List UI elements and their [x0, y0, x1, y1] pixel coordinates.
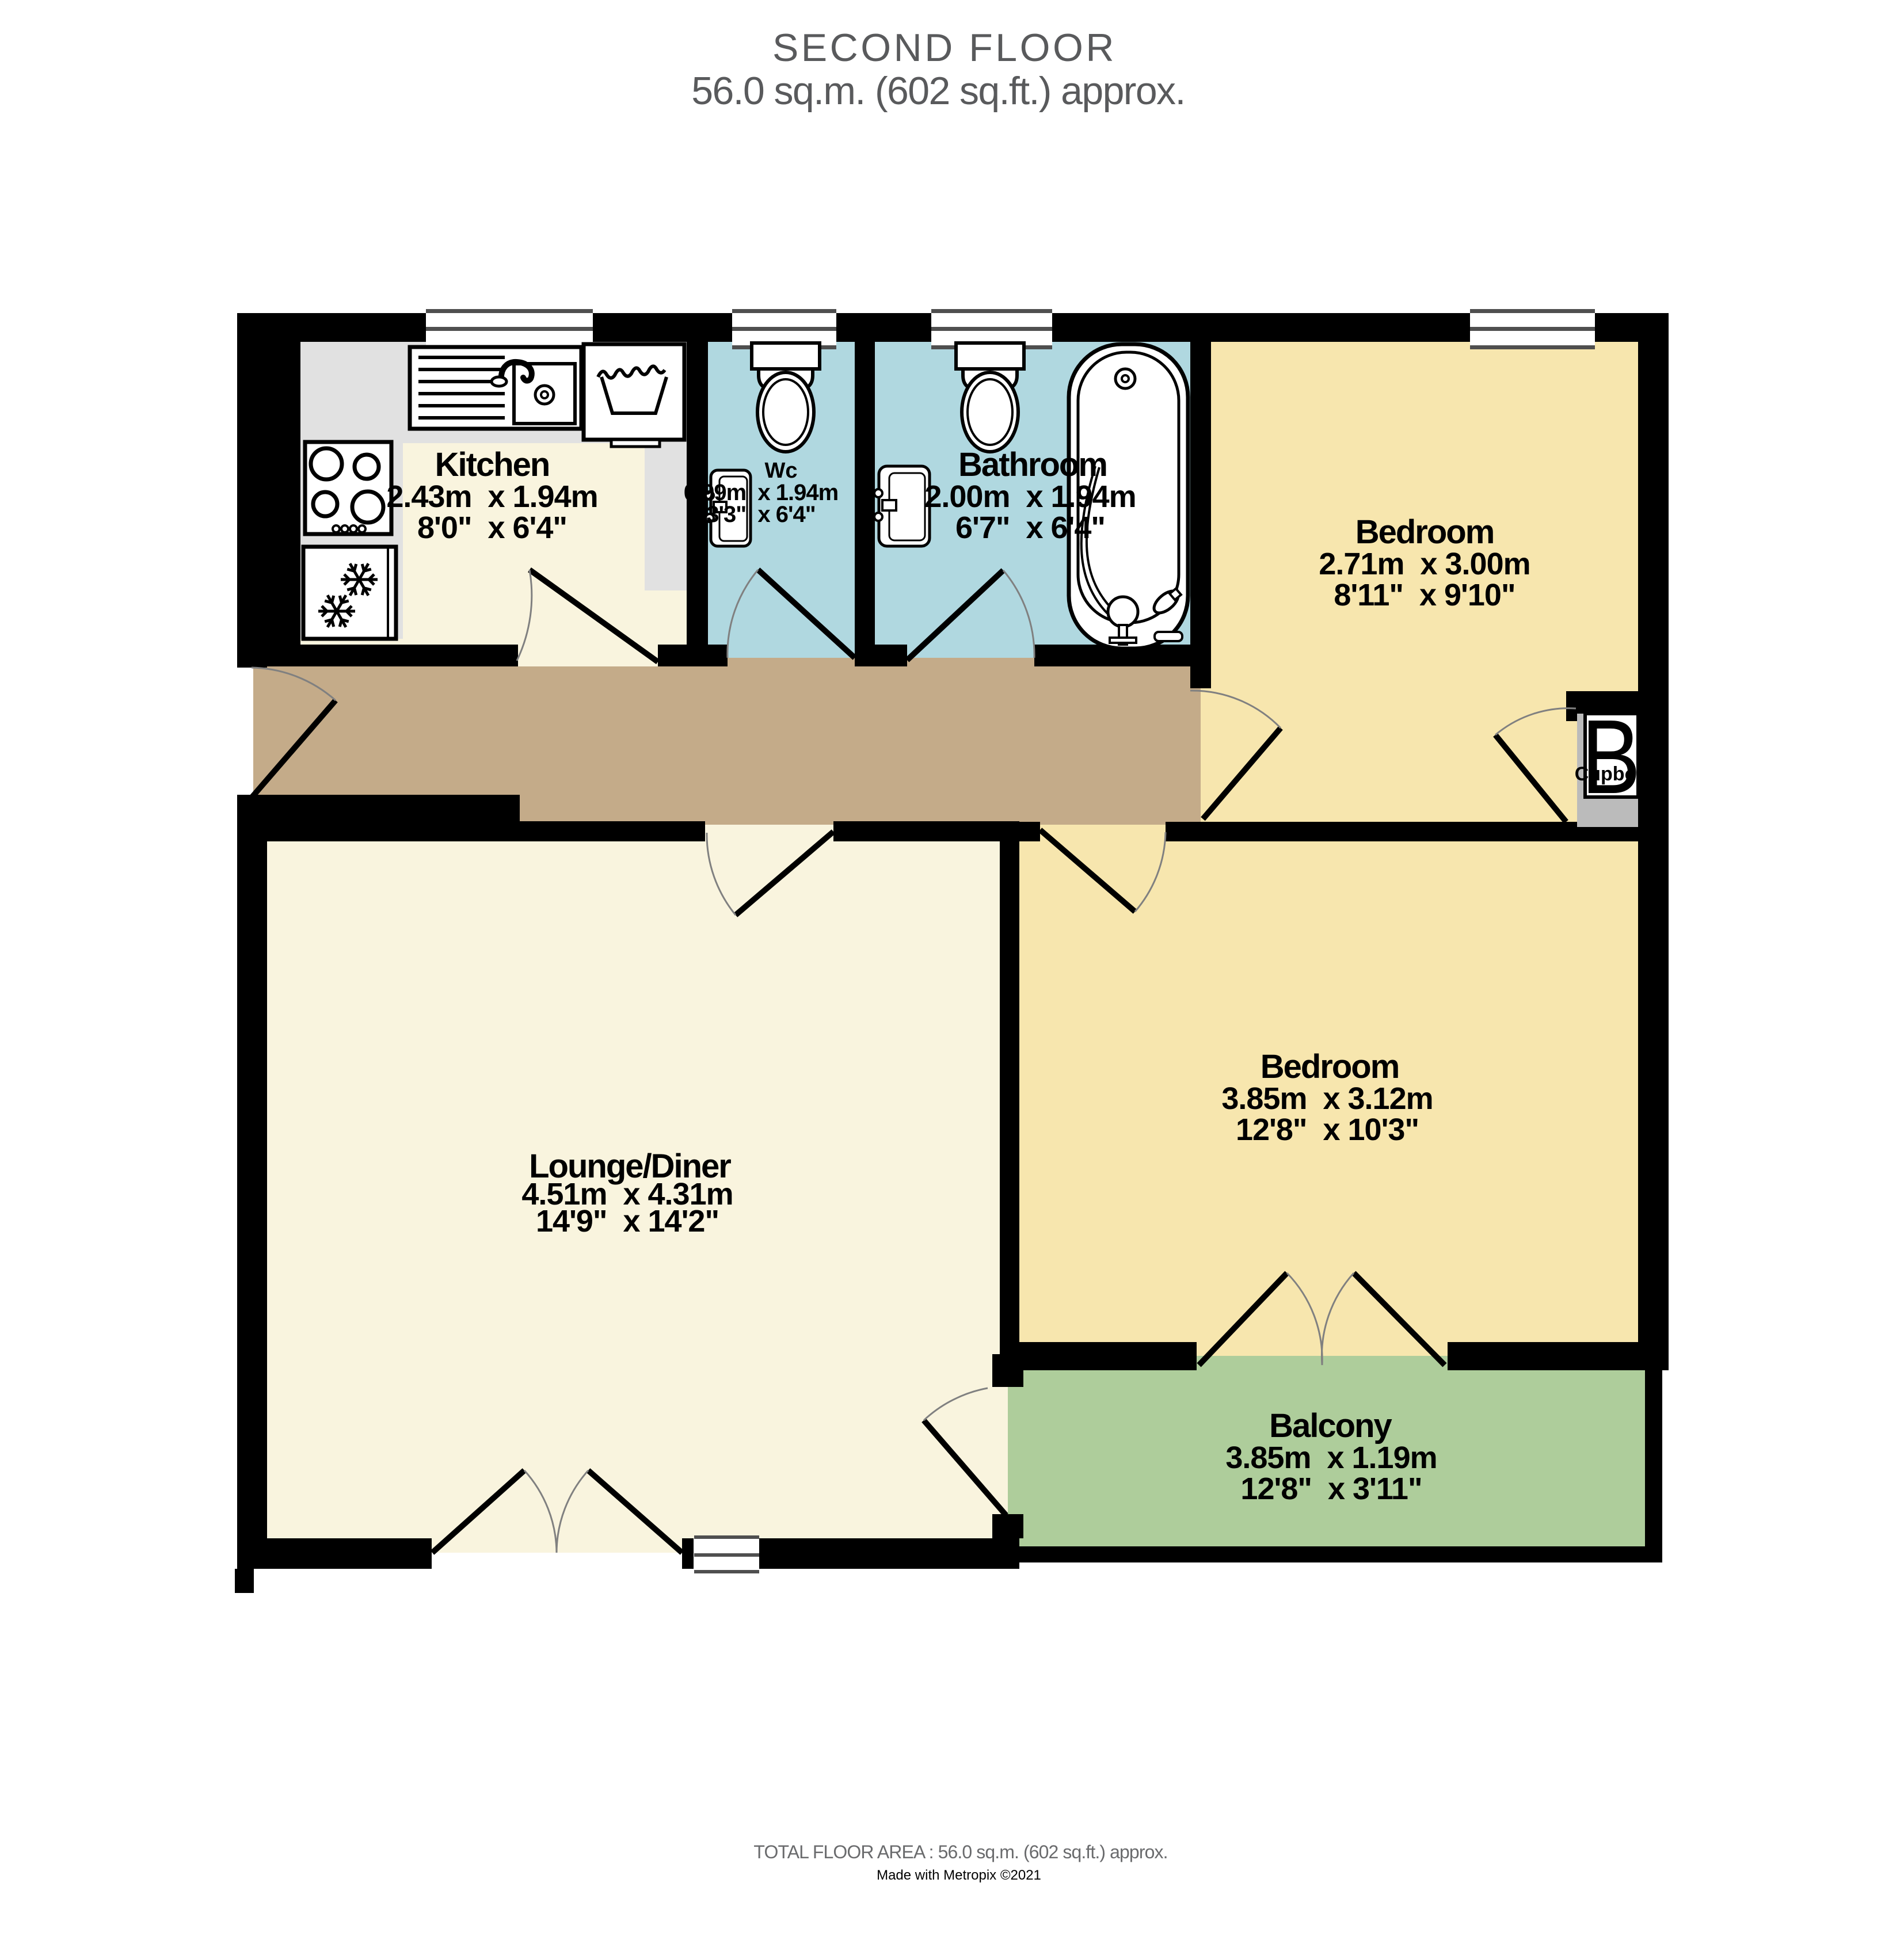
svg-text:12'8" x 10'3": 12'8" x 10'3"	[1236, 1112, 1419, 1147]
svg-text:3'3" x 6'4": 3'3" x 6'4"	[706, 502, 816, 527]
svg-text:TOTAL FLOOR AREA : 56.0 sq.m.: TOTAL FLOOR AREA : 56.0 sq.m. (602 sq.ft…	[753, 1842, 1167, 1862]
svg-text:14'9" x 14'2": 14'9" x 14'2"	[536, 1204, 719, 1238]
svg-text:Kitchen: Kitchen	[435, 446, 550, 483]
svg-text:2.00m x 1.94m: 2.00m x 1.94m	[924, 479, 1136, 514]
svg-text:Bedroom: Bedroom	[1261, 1048, 1399, 1085]
svg-text:8'0" x 6'4": 8'0" x 6'4"	[417, 510, 567, 545]
svg-text:2.71m x 3.00m: 2.71m x 3.00m	[1319, 547, 1530, 581]
svg-text:12'8" x 3'11": 12'8" x 3'11"	[1240, 1472, 1422, 1506]
svg-text:3.85m x 3.12m: 3.85m x 3.12m	[1221, 1081, 1433, 1116]
svg-text:8'11" x 9'10": 8'11" x 9'10"	[1334, 578, 1515, 612]
svg-text:SECOND FLOOR: SECOND FLOOR	[772, 26, 1117, 70]
svg-text:Made with Metropix ©2021: Made with Metropix ©2021	[877, 1867, 1041, 1883]
svg-text:Cupboard: Cupboard	[1575, 763, 1667, 785]
svg-text:2.43m x 1.94m: 2.43m x 1.94m	[386, 479, 597, 514]
svg-text:Wc: Wc	[765, 459, 798, 483]
svg-text:3.85m x 1.19m: 3.85m x 1.19m	[1225, 1440, 1437, 1475]
svg-text:Bedroom: Bedroom	[1355, 513, 1494, 551]
svg-text:Bathroom: Bathroom	[958, 446, 1107, 483]
svg-text:6'7" x 6'4": 6'7" x 6'4"	[955, 510, 1105, 545]
svg-text:56.0 sq.m. (602 sq.ft.) approx: 56.0 sq.m. (602 sq.ft.) approx.	[691, 69, 1185, 113]
svg-text:B: B	[1581, 698, 1640, 815]
svg-text:Balcony: Balcony	[1269, 1407, 1392, 1445]
